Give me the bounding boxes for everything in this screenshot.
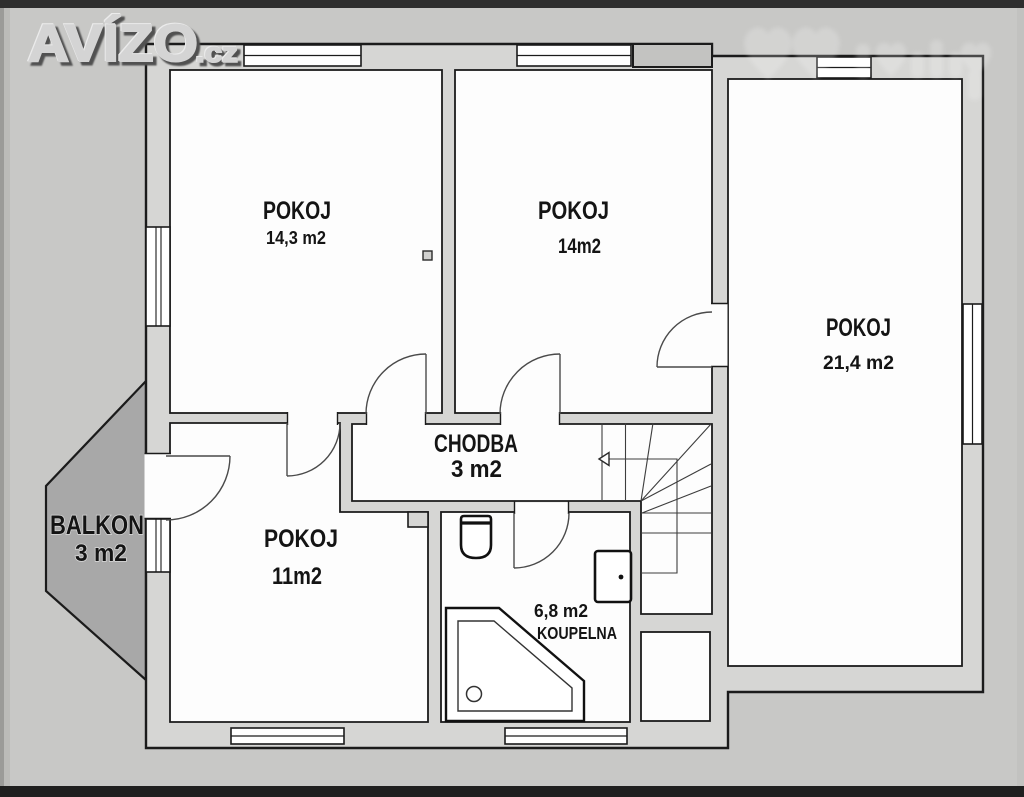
- svg-text:11m2: 11m2: [272, 563, 322, 590]
- svg-text:AVÍZO: AVÍZO: [28, 15, 198, 73]
- svg-text:14m2: 14m2: [558, 235, 601, 258]
- svg-text:3 m2: 3 m2: [75, 540, 127, 567]
- svg-text:POKOJ: POKOJ: [826, 314, 891, 342]
- svg-text:POKOJ: POKOJ: [538, 197, 609, 225]
- svg-text:3 m2: 3 m2: [451, 456, 502, 483]
- svg-text:21,4 m2: 21,4 m2: [823, 353, 894, 374]
- svg-text:CHODBA: CHODBA: [434, 430, 518, 458]
- svg-text:6,8 m2: 6,8 m2: [534, 601, 588, 621]
- svg-text:.cz: .cz: [196, 37, 238, 68]
- svg-text:POKOJ: POKOJ: [263, 197, 331, 225]
- svg-text:14,3 m2: 14,3 m2: [266, 228, 326, 248]
- svg-text:KOUPELNA: KOUPELNA: [537, 623, 617, 643]
- svg-text:POKOJ: POKOJ: [264, 525, 338, 553]
- svg-text:BALKON: BALKON: [50, 510, 144, 540]
